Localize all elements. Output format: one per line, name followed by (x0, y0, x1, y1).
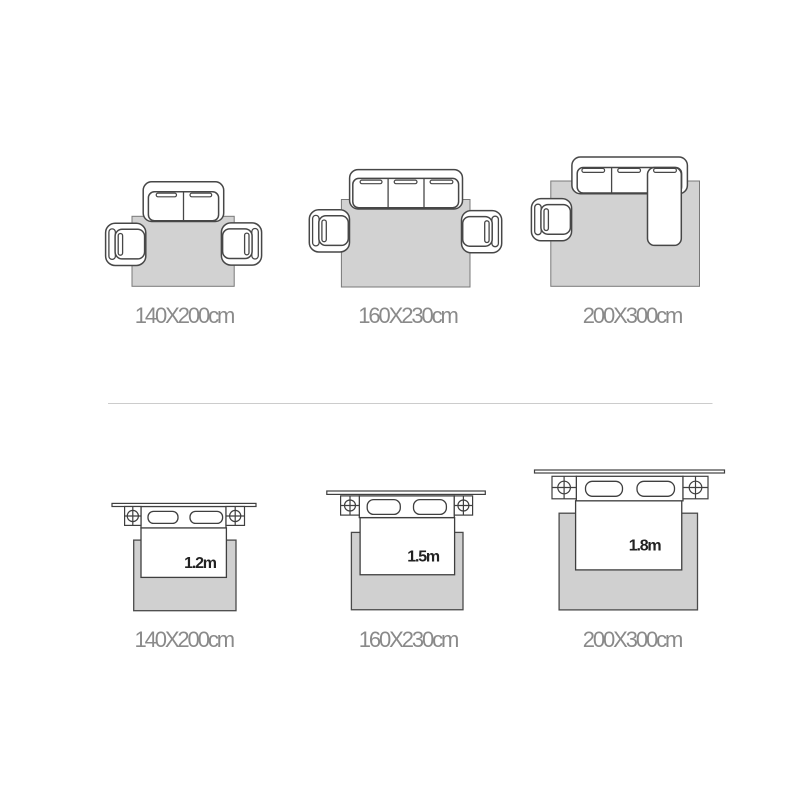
svg-text:1.2m: 1.2m (184, 555, 217, 572)
svg-text:200X300cm: 200X300cm (583, 303, 682, 328)
svg-text:1.5m: 1.5m (407, 549, 440, 566)
svg-text:140X200cm: 140X200cm (135, 303, 234, 328)
svg-text:160X230cm: 160X230cm (358, 303, 457, 328)
svg-text:200X300cm: 200X300cm (583, 627, 682, 652)
svg-text:160X230cm: 160X230cm (359, 627, 458, 652)
svg-text:1.8m: 1.8m (629, 538, 662, 555)
svg-text:140X200cm: 140X200cm (134, 627, 233, 652)
